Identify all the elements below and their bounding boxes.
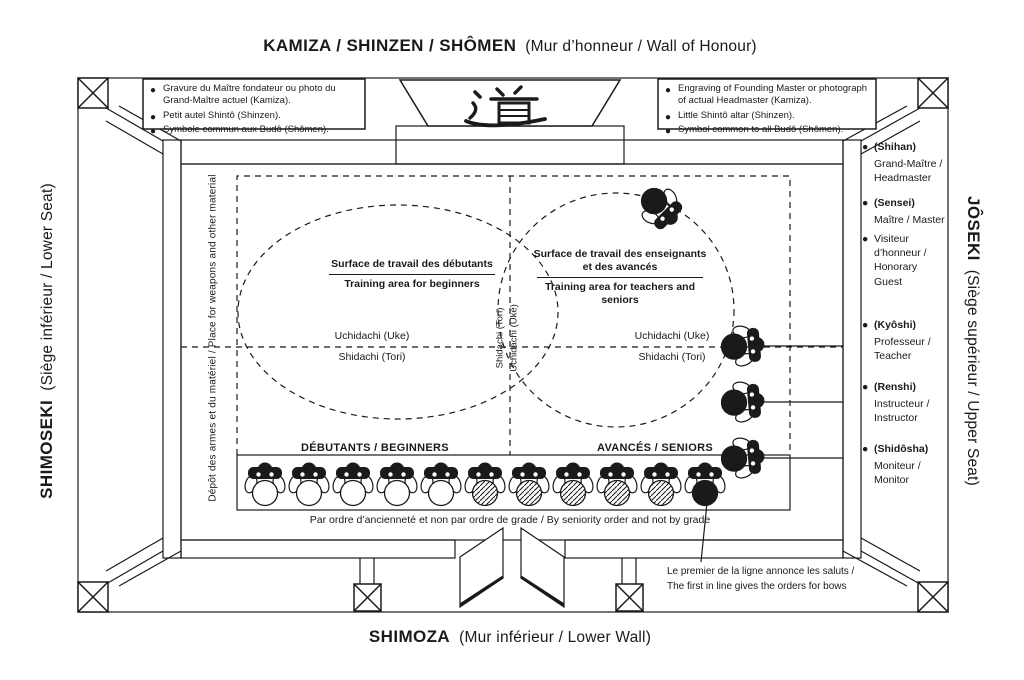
title-joseki-main: JÔSEKI bbox=[964, 196, 983, 261]
bullet-icon: ● bbox=[665, 111, 671, 124]
label-divider bbox=[537, 277, 703, 278]
bullet-icon: ● bbox=[862, 232, 868, 246]
dojo-diagram: KAMIZA / SHINZEN / SHÔMEN (Mur d’honneur… bbox=[0, 0, 1024, 680]
bullet-icon: ● bbox=[150, 111, 156, 124]
title-shimoseki: SHIMOSEKI (Siège inférieur / Lower Seat) bbox=[37, 183, 57, 499]
note-item: ●Little Shintô altar (Shinzen). bbox=[665, 110, 871, 122]
note-item: ●Symbole commun aux Budô (Shômen). bbox=[150, 124, 360, 136]
bullet-icon: ● bbox=[862, 318, 868, 332]
title-joseki-sub: (Siège supérieur / Upper Seat) bbox=[964, 270, 981, 486]
bullet-icon: ● bbox=[862, 196, 868, 210]
title-shimoza-sub: (Mur inférieur / Lower Wall) bbox=[459, 629, 651, 646]
bullet-icon: ● bbox=[150, 84, 156, 97]
note-item: ●Petit autel Shintô (Shinzen). bbox=[150, 110, 360, 122]
beginners-row-label: DÉBUTANTS / BEGINNERS bbox=[301, 442, 449, 454]
uke-label-right: Uchidachi (Uke) bbox=[635, 330, 710, 342]
kamiza-notes-en: ●Engraving of Founding Master or photogr… bbox=[665, 83, 871, 138]
rank-item-honorary-guest: ●Visiteur d’honneur / Honorary Guest bbox=[862, 232, 948, 289]
bullet-icon: ● bbox=[862, 140, 868, 154]
note-item: ●Engraving of Founding Master or photogr… bbox=[665, 83, 871, 108]
title-kamiza-sub: (Mur d’honneur / Wall of Honour) bbox=[525, 38, 757, 55]
rank-item-sensei: ●(Sensei) Maître / Master bbox=[862, 196, 948, 227]
note-item: ●Symbol common to all Budô (Shômen). bbox=[665, 124, 871, 136]
title-kamiza: KAMIZA / SHINZEN / SHÔMEN (Mur d’honneur… bbox=[263, 36, 757, 56]
title-kamiza-main: KAMIZA / SHINZEN / SHÔMEN bbox=[263, 36, 516, 55]
title-shimoseki-sub: (Siège inférieur / Lower Seat) bbox=[39, 183, 56, 391]
beginners-area-label: Surface de travail des débutants Trainin… bbox=[323, 258, 501, 291]
rank-item-kyoshi: ●(Kyôshi) Professeur / Teacher bbox=[862, 318, 948, 364]
rank-item-shihan: ●(Shihan) Grand-Maître / Headmaster bbox=[862, 140, 948, 186]
title-shimoza: SHIMOZA (Mur inférieur / Lower Wall) bbox=[369, 627, 651, 647]
bullet-icon: ● bbox=[862, 442, 868, 456]
title-shimoseki-main: SHIMOSEKI bbox=[37, 400, 56, 499]
rank-item-shidosha: ●(Shidôsha) Moniteur / Monitor bbox=[862, 442, 948, 488]
bullet-icon: ● bbox=[862, 380, 868, 394]
uke-label-left: Uchidachi (Uke) bbox=[335, 330, 410, 342]
seniors-row-label: AVANCÉS / SENIORS bbox=[597, 442, 713, 454]
axis-tori-label: Shidachi (Tori) bbox=[495, 308, 506, 369]
weapons-note: Dépôt des armes et du matériel / Place f… bbox=[208, 174, 219, 501]
bullet-icon: ● bbox=[665, 125, 671, 138]
tori-label-right: Shidachi (Tori) bbox=[638, 351, 705, 363]
bullet-icon: ● bbox=[150, 125, 156, 138]
rank-item-renshi: ●(Renshi) Instructeur / Instructor bbox=[862, 380, 948, 426]
first-in-line-note: Le premier de la ligne annonce les salut… bbox=[667, 565, 854, 594]
seniority-note: Par ordre d’ancienneté et non par ordre … bbox=[310, 514, 710, 526]
title-joseki: JÔSEKI (Siège supérieur / Upper Seat) bbox=[963, 196, 983, 486]
label-divider bbox=[329, 274, 495, 275]
tori-label-left: Shidachi (Tori) bbox=[338, 351, 405, 363]
note-item: ●Gravure du Maître fondateur ou photo du… bbox=[150, 83, 360, 108]
bullet-icon: ● bbox=[665, 84, 671, 97]
axis-uke-label: Uchidachi (Uke) bbox=[509, 304, 520, 372]
seniors-area-label: Surface de travail des enseignants et de… bbox=[531, 248, 709, 308]
kamiza-notes-fr: ●Gravure du Maître fondateur ou photo du… bbox=[150, 83, 360, 138]
title-shimoza-main: SHIMOZA bbox=[369, 627, 450, 646]
